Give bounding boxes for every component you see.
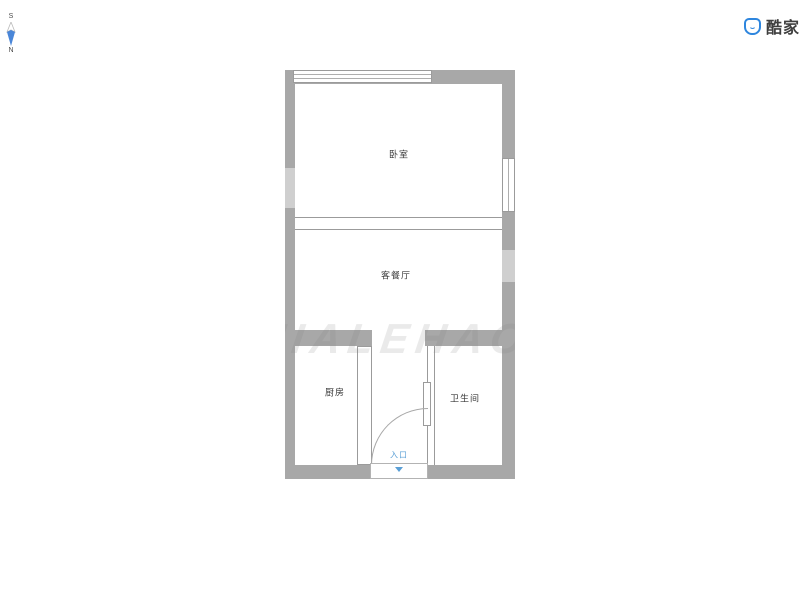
kujiale-floorplan-page: S N 酷家乐 — [0, 0, 800, 600]
compass-needle-icon — [6, 22, 16, 46]
room-label-kitchen: 厨房 — [325, 386, 345, 399]
compass-icon: S N — [3, 13, 19, 55]
brand-name: 酷家乐 — [766, 14, 800, 38]
floorplan-canvas[interactable]: 卧室 客餐厅 厨房 卫生间 入口 KUJIALEHAOFANGAN — [285, 70, 515, 479]
compass-north-label: N — [3, 47, 19, 55]
window-right-wall — [502, 158, 515, 212]
room-label-living-dining: 客餐厅 — [381, 269, 411, 282]
smile-icon — [749, 23, 756, 29]
bedroom-living-opening — [295, 217, 502, 230]
entrance-label: 入口 — [390, 450, 408, 461]
wall-left — [285, 70, 295, 479]
wall-kitchen-top — [295, 330, 357, 346]
window-top-wall — [293, 70, 432, 83]
wall-kitchen-door-cap — [357, 330, 372, 346]
wall-bathroom-top — [425, 330, 502, 346]
compass-south-label: S — [3, 13, 19, 21]
triangle-down-icon — [395, 467, 403, 472]
window-pane-line — [294, 78, 431, 79]
kujiale-brand-logo[interactable]: 酷家乐 — [744, 16, 800, 36]
kitchen-sliding-door — [357, 346, 372, 465]
window-pane-line — [294, 74, 431, 75]
wall-right — [502, 70, 515, 479]
kujiale-badge-icon — [744, 18, 761, 35]
room-label-bathroom: 卫生间 — [450, 392, 480, 405]
room-label-bedroom: 卧室 — [389, 148, 409, 161]
window-pane-line — [508, 159, 509, 211]
